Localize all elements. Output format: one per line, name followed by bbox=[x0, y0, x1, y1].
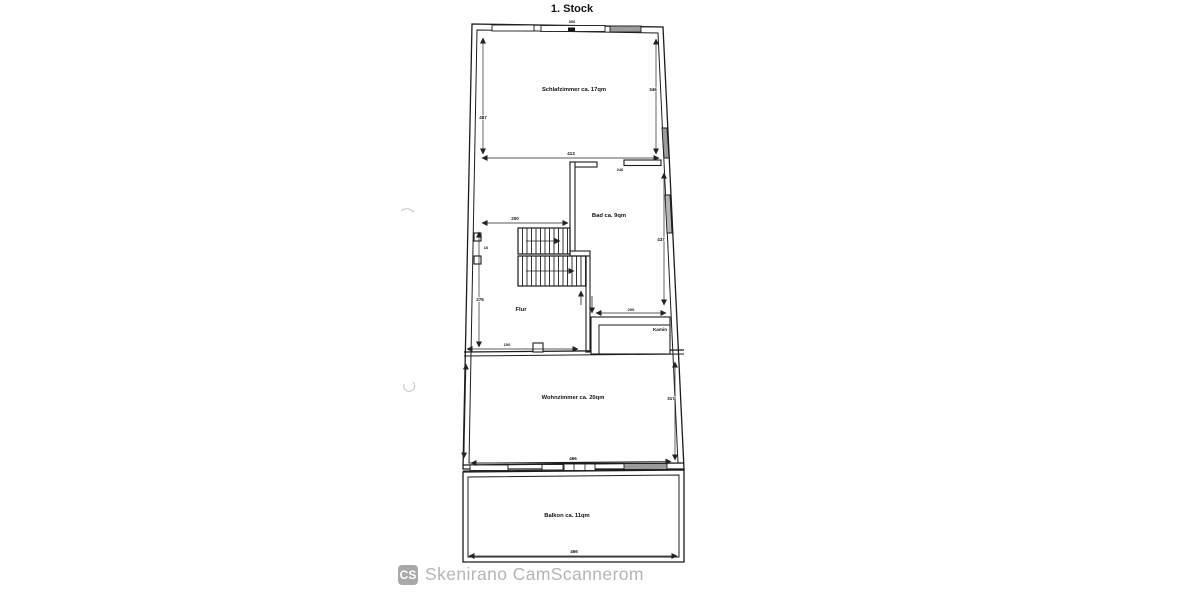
flur-wall-pier bbox=[533, 343, 543, 352]
dim-label-balkon-width: 466 bbox=[570, 549, 578, 554]
dim-label-flur-height: 276 bbox=[476, 297, 484, 302]
kamin-structure: 200 bbox=[591, 296, 670, 354]
window-top-left bbox=[492, 25, 534, 31]
dim-label-top-wall: 306 bbox=[569, 19, 576, 24]
cs-logo-badge: CS bbox=[398, 565, 418, 585]
room-label-kamin: Kamin bbox=[653, 327, 667, 332]
window-bottom-center bbox=[542, 465, 563, 471]
plan-title: 1. Stock bbox=[551, 3, 594, 15]
room-label-wohnzimmer: Wohnzimmer ca. 20qm bbox=[542, 395, 605, 401]
top-wall-tick bbox=[568, 28, 575, 32]
kamin-outer bbox=[591, 317, 670, 354]
dim-label-wohnzimmer-width: 466 bbox=[569, 456, 577, 461]
scan-smudge-top bbox=[401, 209, 414, 212]
scan-smudge-bottom bbox=[404, 382, 415, 391]
dim-label-wohnzimmer-height: 317 bbox=[667, 396, 675, 401]
wall-niche-lower bbox=[474, 256, 481, 264]
dim-label-bad-door: 246 bbox=[617, 167, 624, 172]
window-bottom-left bbox=[470, 465, 508, 471]
room-label-bad: Bad ca. 9qm bbox=[592, 213, 626, 219]
stair-step-wall bbox=[570, 251, 590, 256]
dim-label-schlafzimmer-width: 413 bbox=[567, 151, 575, 156]
watermark-text: Skenirano CamScannerom bbox=[425, 564, 644, 585]
dim-label-kamin: 200 bbox=[628, 307, 635, 312]
room-label-schlafzimmer: Schlafzimmer ca. 17qm bbox=[542, 87, 606, 93]
window-top-right-shaded bbox=[610, 26, 641, 32]
dim-label-bad-height: 437 bbox=[657, 237, 665, 242]
dim-label-wall-niche: 16 bbox=[484, 245, 489, 250]
staircase bbox=[518, 228, 586, 305]
bad-top-wall-right bbox=[624, 160, 661, 166]
floor-plan-drawing: 1. Stock 413 487 346 306 437 246 bbox=[0, 0, 1200, 600]
stair-bad-divider-wall bbox=[570, 162, 575, 254]
camscanner-watermark: CS Skenirano CamScannerom bbox=[398, 564, 644, 585]
dim-label-flur-door: 100 bbox=[504, 342, 511, 347]
room-label-flur: Flur bbox=[516, 307, 528, 313]
room-label-balkon: Balkon ca. 11qm bbox=[544, 513, 589, 519]
wall-niche-upper bbox=[474, 233, 481, 241]
dim-label-schlafzimmer-right: 346 bbox=[649, 87, 657, 92]
window-bottom-right-shaded bbox=[624, 464, 667, 470]
scanned-floor-plan-page: 1. Stock 413 487 346 306 437 246 bbox=[0, 0, 1200, 600]
balcony-door bbox=[564, 464, 595, 471]
left-wall-niches: 16 bbox=[474, 233, 489, 264]
dim-label-stair-hall: 200 bbox=[511, 216, 519, 221]
top-wall-windows bbox=[492, 25, 641, 32]
dim-label-schlafzimmer-left: 487 bbox=[479, 115, 487, 120]
